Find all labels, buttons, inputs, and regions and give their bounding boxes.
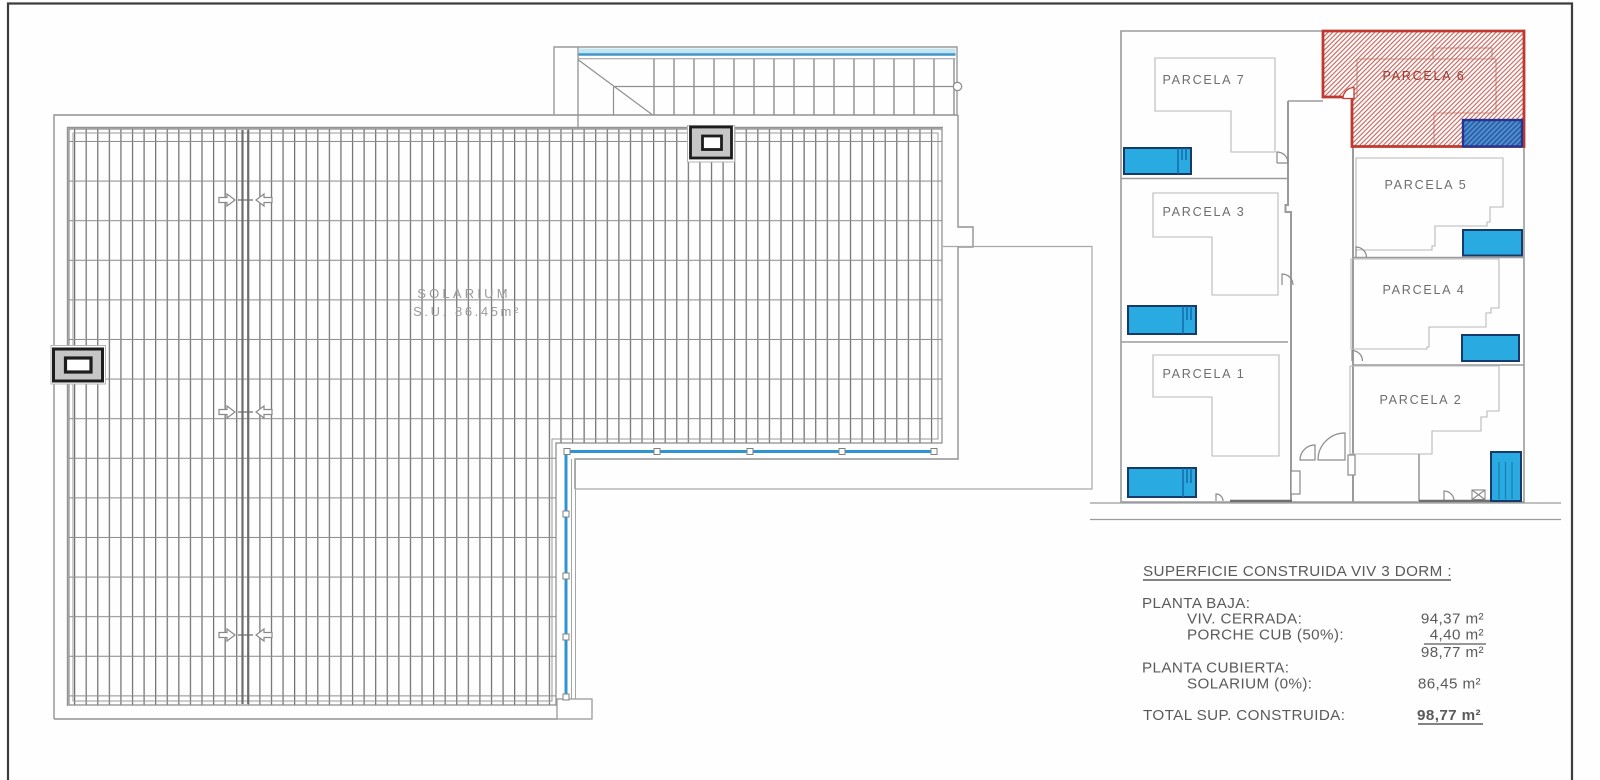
- svg-text:PARCELA 6: PARCELA 6: [1383, 69, 1466, 83]
- svg-text:PORCHE CUB (50%):: PORCHE CUB (50%):: [1187, 627, 1344, 644]
- svg-text:PARCELA 2: PARCELA 2: [1380, 393, 1463, 407]
- svg-text:SOLARIUM: SOLARIUM: [417, 286, 511, 301]
- svg-text:TOTAL SUP. CONSTRUIDA:: TOTAL SUP. CONSTRUIDA:: [1143, 707, 1345, 724]
- svg-text:98,77 m²: 98,77 m²: [1421, 644, 1484, 661]
- svg-text:PARCELA 1: PARCELA 1: [1163, 367, 1246, 381]
- svg-text:PLANTA BAJA:: PLANTA BAJA:: [1142, 595, 1250, 612]
- svg-text:SOLARIUM (0%):: SOLARIUM (0%):: [1187, 676, 1312, 693]
- svg-text:PARCELA 7: PARCELA 7: [1163, 73, 1246, 87]
- svg-text:VIV. CERRADA:: VIV. CERRADA:: [1187, 611, 1302, 628]
- svg-text:PLANTA CUBIERTA:: PLANTA CUBIERTA:: [1142, 660, 1289, 677]
- svg-text:PARCELA 5: PARCELA 5: [1385, 178, 1468, 192]
- svg-text:SUPERFICIE CONSTRUIDA VIV 3 DO: SUPERFICIE CONSTRUIDA VIV 3 DORM :: [1143, 563, 1452, 580]
- svg-text:PARCELA 3: PARCELA 3: [1163, 205, 1246, 219]
- svg-text:S.U. 86.45m²: S.U. 86.45m²: [413, 304, 521, 319]
- svg-text:86,45 m²: 86,45 m²: [1418, 676, 1481, 693]
- svg-text:PARCELA 4: PARCELA 4: [1383, 283, 1466, 297]
- svg-text:94,37 m²: 94,37 m²: [1421, 611, 1484, 628]
- svg-text:98,77 m²: 98,77 m²: [1417, 707, 1481, 724]
- svg-text:4,40 m²: 4,40 m²: [1430, 627, 1484, 644]
